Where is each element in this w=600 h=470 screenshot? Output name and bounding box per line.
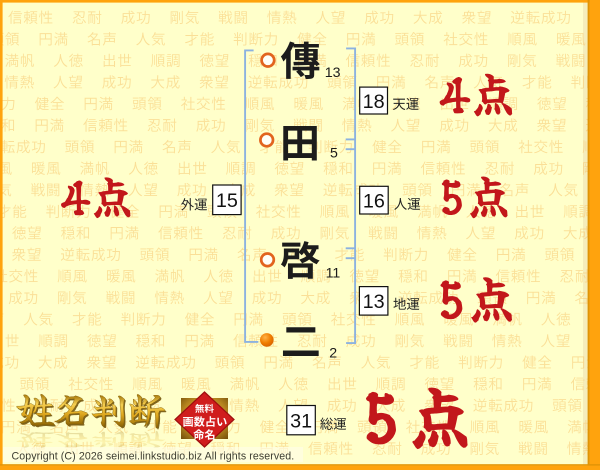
svg-text:16: 16 xyxy=(363,191,385,213)
svg-text:2: 2 xyxy=(329,346,337,362)
svg-text:15: 15 xyxy=(216,190,238,212)
svg-text:5: 5 xyxy=(330,146,338,162)
svg-text:18: 18 xyxy=(363,91,385,113)
svg-text:13: 13 xyxy=(325,65,341,81)
svg-text:31: 31 xyxy=(290,411,312,433)
svg-text:11: 11 xyxy=(326,266,341,282)
svg-text:13: 13 xyxy=(363,291,385,313)
svg-text:Copyright (C) 2026 seimei.link: Copyright (C) 2026 seimei.linkstudio.biz… xyxy=(12,450,295,462)
